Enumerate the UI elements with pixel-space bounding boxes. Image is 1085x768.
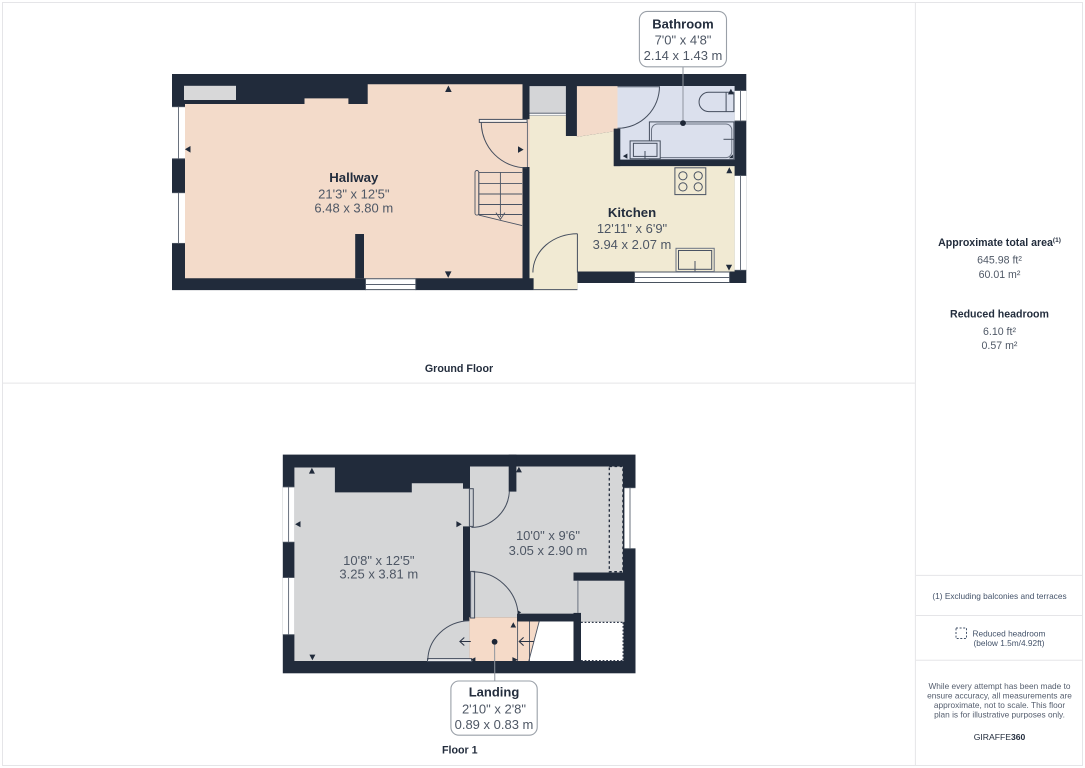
svg-text:Ground Floor: Ground Floor <box>425 363 493 375</box>
svg-text:10'0" x 9'6": 10'0" x 9'6" <box>516 528 580 543</box>
svg-text:2.14 x 1.43 m: 2.14 x 1.43 m <box>644 48 723 63</box>
svg-text:approximate, not to scale. Thi: approximate, not to scale. This floor <box>934 700 1066 710</box>
svg-text:While every attempt has been m: While every attempt has been made to <box>928 681 1070 691</box>
svg-text:GIRAFFE360: GIRAFFE360 <box>974 732 1026 742</box>
svg-text:60.01 m²: 60.01 m² <box>979 269 1021 281</box>
svg-text:2'10" x 2'8": 2'10" x 2'8" <box>462 701 526 716</box>
svg-text:6.48 x 3.80 m: 6.48 x 3.80 m <box>314 201 393 216</box>
svg-text:Floor 1: Floor 1 <box>442 745 478 757</box>
svg-text:7'0" x 4'8": 7'0" x 4'8" <box>655 33 712 48</box>
svg-text:3.94 x 2.07 m: 3.94 x 2.07 m <box>593 237 672 252</box>
svg-text:(below 1.5m/4.92ft): (below 1.5m/4.92ft) <box>973 638 1044 648</box>
svg-text:6.10 ft²: 6.10 ft² <box>983 326 1016 338</box>
svg-text:12'11" x 6'9": 12'11" x 6'9" <box>597 221 668 236</box>
svg-text:645.98 ft²: 645.98 ft² <box>977 255 1022 267</box>
svg-text:0.89 x 0.83 m: 0.89 x 0.83 m <box>455 717 534 732</box>
svg-text:Approximate total area(1): Approximate total area(1) <box>938 237 1061 249</box>
svg-text:21'3" x 12'5": 21'3" x 12'5" <box>318 187 390 202</box>
svg-text:Bathroom: Bathroom <box>652 16 713 31</box>
svg-text:Hallway: Hallway <box>329 170 379 185</box>
svg-text:Reduced headroom: Reduced headroom <box>950 309 1049 321</box>
svg-text:Landing: Landing <box>469 685 520 700</box>
svg-text:3.25 x 3.81 m: 3.25 x 3.81 m <box>339 566 418 581</box>
svg-text:ensure accuracy, all measureme: ensure accuracy, all measurements are <box>927 690 1072 700</box>
svg-text:Reduced headroom: Reduced headroom <box>973 629 1046 639</box>
svg-text:Kitchen: Kitchen <box>608 205 656 220</box>
svg-text:(1) Excluding balconies and te: (1) Excluding balconies and terraces <box>932 591 1066 601</box>
svg-text:0.57 m²: 0.57 m² <box>982 340 1018 352</box>
svg-text:plan is for illustrative purpo: plan is for illustrative purposes only. <box>934 710 1065 720</box>
svg-text:3.05 x 2.90 m: 3.05 x 2.90 m <box>509 543 588 558</box>
